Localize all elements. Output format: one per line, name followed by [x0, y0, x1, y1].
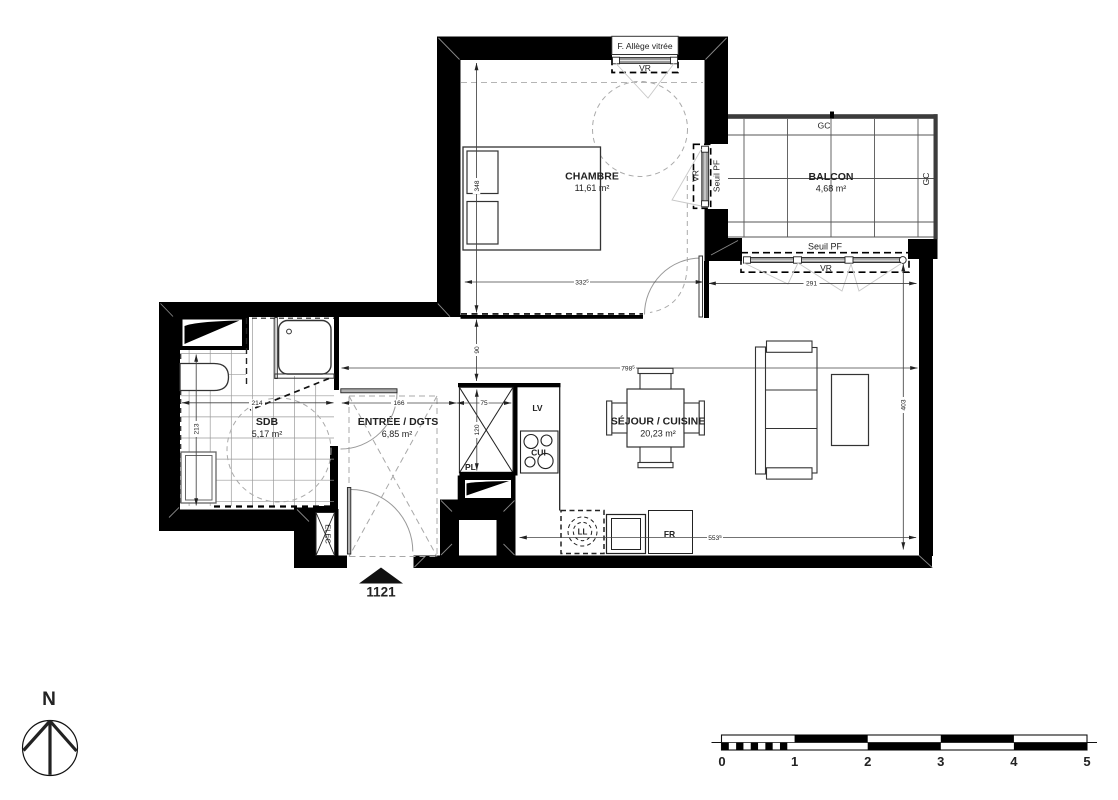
- svg-text:5,17 m²: 5,17 m²: [252, 429, 283, 439]
- svg-text:ENTRÉE / DGTS: ENTRÉE / DGTS: [358, 415, 439, 428]
- svg-text:GC: GC: [818, 121, 831, 131]
- svg-text:CHAMBRE: CHAMBRE: [565, 171, 619, 183]
- svg-text:2: 2: [864, 754, 871, 769]
- svg-text:VR: VR: [820, 263, 832, 273]
- svg-text:213: 213: [193, 423, 200, 434]
- svg-text:120: 120: [474, 424, 481, 435]
- svg-text:CUI: CUI: [531, 448, 546, 458]
- svg-text:214: 214: [251, 400, 262, 407]
- svg-text:291: 291: [806, 281, 817, 288]
- svg-text:5: 5: [1083, 754, 1090, 769]
- svg-text:Seuil PF: Seuil PF: [808, 242, 843, 252]
- svg-text:403: 403: [901, 399, 908, 410]
- svg-text:11,61 m²: 11,61 m²: [575, 183, 610, 193]
- svg-text:1121: 1121: [366, 585, 396, 600]
- svg-text:20,23 m²: 20,23 m²: [640, 429, 676, 439]
- svg-text:VR: VR: [691, 170, 701, 182]
- svg-text:90: 90: [474, 346, 481, 354]
- svg-text:75: 75: [480, 400, 488, 407]
- svg-text:1: 1: [791, 754, 798, 769]
- svg-text:4,68 m²: 4,68 m²: [816, 184, 847, 194]
- svg-text:SDB: SDB: [256, 416, 279, 428]
- svg-text:LV: LV: [532, 403, 543, 413]
- svg-text:0: 0: [718, 754, 725, 769]
- svg-text:ELEC: ELEC: [324, 524, 333, 544]
- svg-text:348: 348: [474, 180, 481, 191]
- svg-text:BALCON: BALCON: [809, 171, 854, 183]
- svg-text:PL: PL: [465, 462, 476, 472]
- svg-text:LL: LL: [578, 528, 588, 537]
- svg-text:Seuil PF: Seuil PF: [712, 160, 722, 192]
- svg-text:VR: VR: [639, 63, 651, 73]
- svg-text:166: 166: [393, 400, 404, 407]
- svg-text:SÉJOUR / CUISINE: SÉJOUR / CUISINE: [611, 415, 706, 428]
- svg-text:6,85 m²: 6,85 m²: [382, 429, 413, 439]
- svg-text:F. Allège vitrée: F. Allège vitrée: [617, 41, 673, 51]
- svg-text:N: N: [42, 689, 56, 710]
- svg-text:3: 3: [937, 754, 944, 769]
- svg-text:4: 4: [1010, 754, 1018, 769]
- svg-text:GC: GC: [921, 173, 931, 186]
